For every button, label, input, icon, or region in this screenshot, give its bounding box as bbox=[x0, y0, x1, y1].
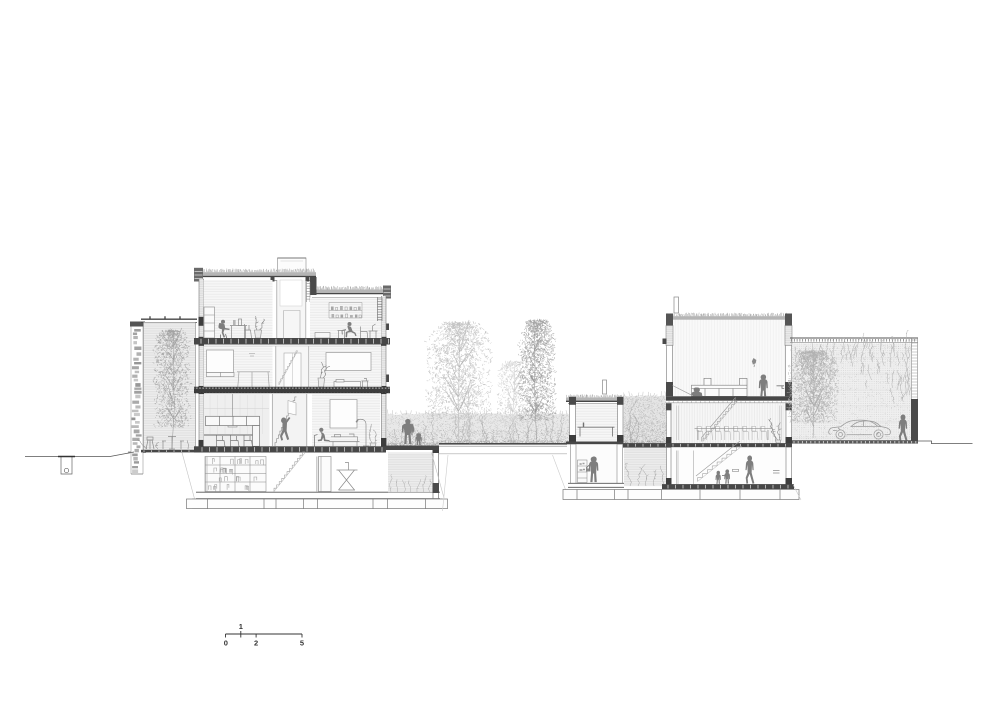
svg-text:1: 1 bbox=[239, 622, 243, 631]
svg-text:5: 5 bbox=[300, 639, 304, 648]
svg-text:0: 0 bbox=[224, 639, 228, 648]
svg-text:2: 2 bbox=[254, 639, 258, 648]
